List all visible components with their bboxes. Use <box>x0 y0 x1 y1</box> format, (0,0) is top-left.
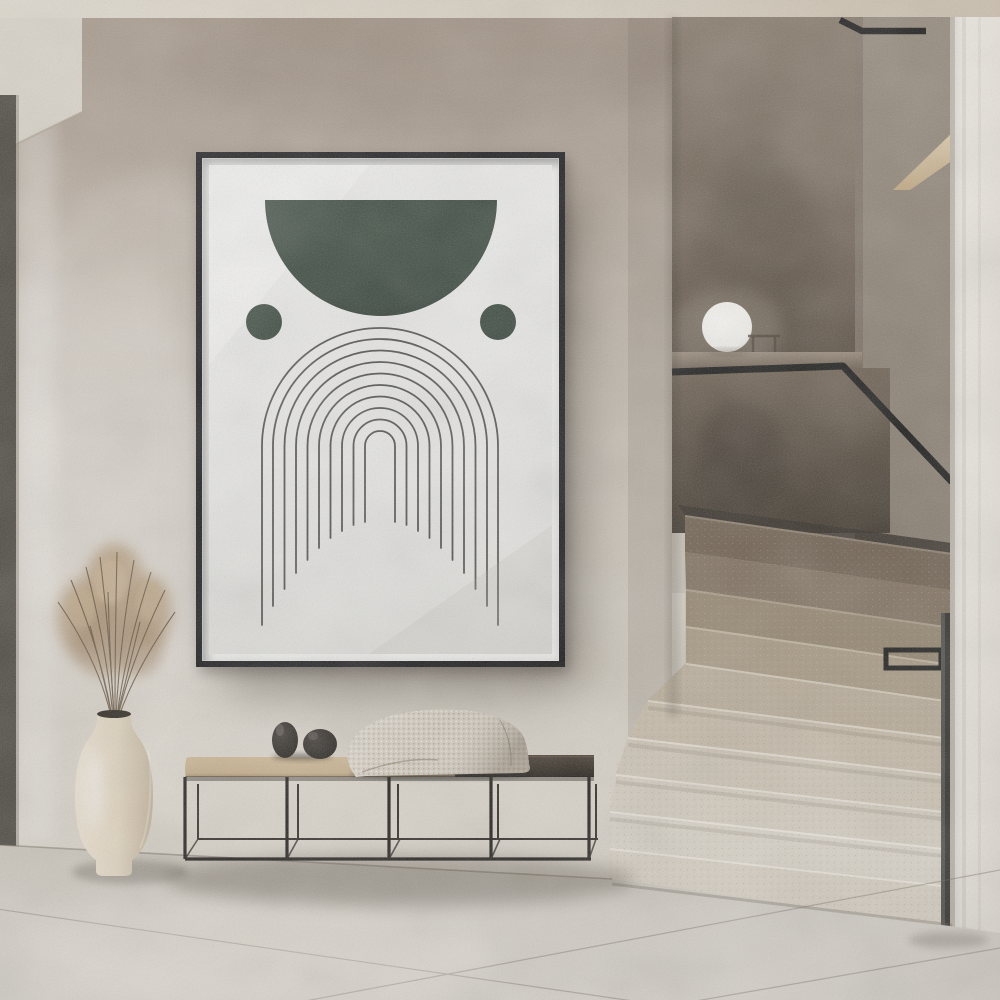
interior-photo <box>0 0 1000 1000</box>
art-dot-right <box>480 304 516 340</box>
decor-balls <box>272 722 337 761</box>
bench-frame-back <box>198 784 598 839</box>
decor-ball-large <box>272 722 298 758</box>
door-frame <box>0 95 19 885</box>
bench <box>170 700 610 880</box>
ceiling <box>0 0 1000 18</box>
poster-artwork <box>209 165 552 654</box>
vase-mouth <box>97 710 131 718</box>
framed-poster <box>196 152 565 667</box>
right-wall-pillar <box>950 17 1000 1000</box>
vase-and-plant <box>40 530 190 890</box>
vase <box>75 710 153 876</box>
dried-grass-plume <box>57 544 172 676</box>
art-dot-left <box>246 304 282 340</box>
blanket <box>347 709 534 778</box>
poster-mat <box>202 158 559 661</box>
bench-frame-front <box>185 777 591 859</box>
